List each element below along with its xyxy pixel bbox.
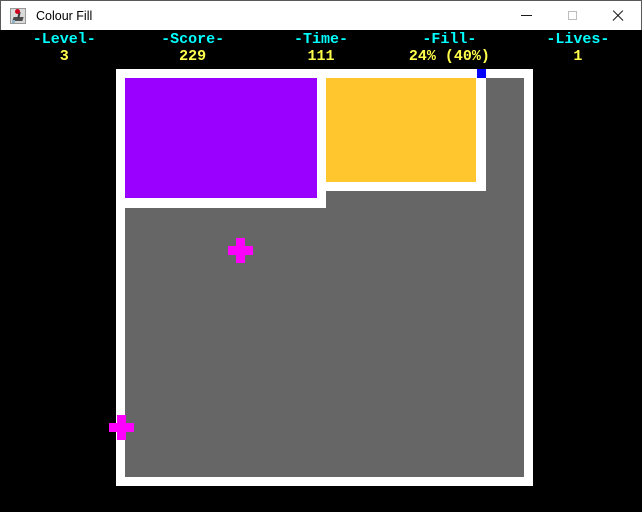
close-button[interactable]	[595, 1, 641, 30]
title-bar[interactable]: Colour Fill	[0, 0, 642, 30]
hud-level-label: -Level-	[0, 31, 128, 48]
hud-time-label: -Time-	[257, 31, 385, 48]
hud-lives-value: 1	[514, 48, 642, 65]
game-client-area: -Level- 3 -Score- 229 -Time- 111 -Fill- …	[0, 30, 642, 512]
filled-region-purple	[125, 78, 317, 198]
hud-score-label: -Score-	[128, 31, 256, 48]
hud-fill-value: 24% (40%)	[385, 48, 513, 65]
wall-horizontal-left	[125, 198, 317, 208]
filled-region-yellow	[326, 78, 476, 182]
minimize-button[interactable]	[503, 1, 549, 30]
hud-lives: -Lives- 1	[514, 31, 642, 65]
playfield[interactable]	[116, 69, 533, 486]
maximize-icon	[568, 11, 577, 20]
hud-time-value: 111	[257, 48, 385, 65]
hud-score-value: 229	[128, 48, 256, 65]
wall-vertical-left	[317, 78, 326, 208]
window-controls	[503, 1, 641, 30]
wall-horizontal-right	[326, 182, 486, 191]
player-marker	[477, 69, 486, 78]
hud-fill-label: -Fill-	[385, 31, 513, 48]
joystick-app-icon	[10, 8, 26, 24]
hud-lives-label: -Lives-	[514, 31, 642, 48]
enemy-cross-field	[228, 238, 253, 263]
minimize-icon	[521, 15, 532, 16]
hud-level: -Level- 3	[0, 31, 128, 65]
hud-time: -Time- 111	[257, 31, 385, 65]
close-icon	[612, 10, 624, 22]
app-window: Colour Fill -Level- 3 -Score- 229	[0, 0, 642, 512]
enemy-cross-border	[109, 415, 134, 440]
hud-level-value: 3	[0, 48, 128, 65]
window-title: Colour Fill	[36, 9, 92, 23]
hud: -Level- 3 -Score- 229 -Time- 111 -Fill- …	[0, 31, 642, 65]
hud-fill: -Fill- 24% (40%)	[385, 31, 513, 65]
maximize-button[interactable]	[549, 1, 595, 30]
wall-vertical-right	[476, 78, 486, 191]
hud-score: -Score- 229	[128, 31, 256, 65]
